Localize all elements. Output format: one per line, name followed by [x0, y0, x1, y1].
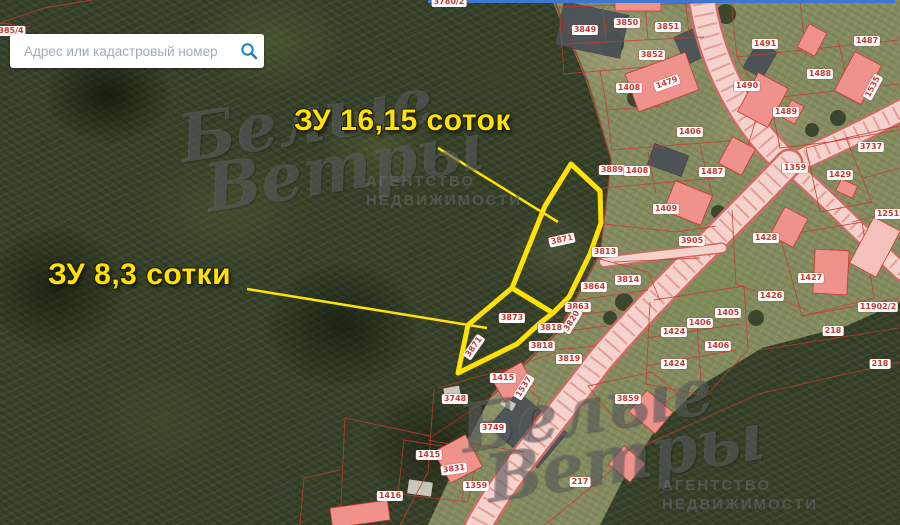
parcel-label: 3780/2: [432, 0, 467, 7]
parcel-label: 3850: [614, 18, 640, 28]
parcel-label: 3859: [615, 394, 641, 404]
parcel-label: 1490: [734, 81, 760, 91]
parcel-label: 1487: [699, 167, 725, 177]
search-box: [10, 34, 264, 68]
parcel-label: 3849: [572, 25, 598, 35]
parcel-label: 3873: [499, 313, 525, 323]
parcel-label: 218: [823, 326, 844, 336]
parcel-label: 1405: [715, 308, 741, 318]
parcel-label: 3852: [639, 50, 665, 60]
parcel-label: 1427: [798, 273, 824, 283]
leader-line-16-15: [438, 148, 558, 222]
parcel-label: 3737: [858, 142, 884, 152]
parcel-label: 1408: [624, 166, 650, 176]
parcel-label: 1429: [827, 170, 853, 180]
parcel-label: 3813: [592, 247, 618, 257]
parcel-label: 1406: [705, 341, 731, 351]
parcel-label: 1426: [758, 291, 784, 301]
parcel-label: 1487: [854, 36, 880, 46]
search-input[interactable]: [22, 43, 234, 60]
annotation-plot-16-15: ЗУ 16,15 соток: [294, 104, 511, 138]
parcel-label: 1488: [807, 69, 833, 79]
parcel-label: 1406: [687, 318, 713, 328]
parcel-label: 1251: [875, 209, 900, 219]
parcel-label: 1415: [490, 373, 516, 383]
parcel-label: 3905: [679, 236, 705, 246]
parcel-label: 3818: [529, 341, 555, 351]
parcel-label: 1359: [463, 481, 489, 491]
parcel-label: 1416: [377, 491, 403, 501]
parcel-label: 1406: [677, 127, 703, 137]
parcel-label: 3851: [655, 22, 681, 32]
parcel-label: 1424: [661, 359, 687, 369]
parcel-label: 3818: [538, 323, 564, 333]
parcel-label: 3749: [480, 423, 506, 433]
parcel-label: 1491: [752, 39, 778, 49]
search-icon[interactable]: [234, 34, 264, 68]
parcel-label: 11902/2: [858, 302, 898, 312]
parcel-label: 1424: [661, 327, 687, 337]
parcel-label: 1415: [416, 450, 442, 460]
parcel-label: 3889: [599, 165, 625, 175]
parcel-label: 1428: [753, 233, 779, 243]
parcel-label: 3748: [442, 394, 468, 404]
leader-line-8-3: [247, 289, 487, 328]
parcel-label: 1408: [616, 83, 642, 93]
parcel-label: 3814: [615, 275, 641, 285]
top-blue-strip: [428, 0, 895, 3]
parcel-label: 3819: [556, 354, 582, 364]
parcel-label: 1489: [773, 107, 799, 117]
parcel-label: 1409: [653, 204, 679, 214]
gray-roof: [647, 144, 688, 177]
annotation-plot-8-3: ЗУ 8,3 сотки: [48, 258, 231, 292]
highlighted-plots: [247, 148, 601, 373]
parcel-label: 3864: [581, 282, 607, 292]
parcel-label: 1359: [782, 163, 808, 173]
parcel-label: 218: [870, 359, 891, 369]
parcel-label: 217: [570, 477, 591, 487]
cadastral-map[interactable]: Белые Ветры АГЕНТСТВО НЕДВИЖИМОСТИ Белые…: [0, 0, 900, 525]
